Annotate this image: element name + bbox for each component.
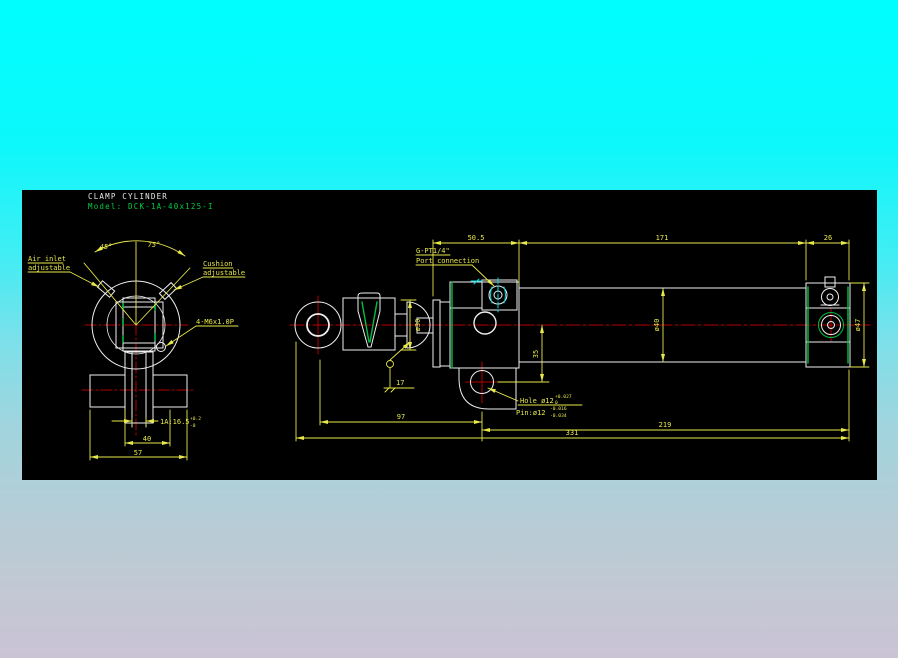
air-inlet-label-line1: Air inlet bbox=[28, 255, 66, 263]
front-view-angle-dimension bbox=[84, 241, 190, 325]
desktop-background: { "title_block": { "title": "CLAMP CYLIN… bbox=[0, 0, 898, 658]
tube-length-text: 171 bbox=[656, 234, 669, 242]
overall-length-text: 331 bbox=[566, 429, 579, 437]
air-inlet-callout: Air inlet adjustable bbox=[28, 255, 99, 287]
drawing-title: CLAMP CYLINDER bbox=[88, 192, 168, 201]
hole-label: Hole ø12 bbox=[520, 397, 554, 405]
cushion-label-line2: adjustable bbox=[203, 269, 245, 277]
slot-tolerance-upper: +0.2 bbox=[190, 416, 201, 422]
front-view-green-marks bbox=[123, 303, 155, 342]
port-label-line2: Port connection bbox=[416, 257, 479, 265]
cad-drawing: CLAMP CYLINDER Model: DCK-1A-40x125-I bbox=[22, 190, 877, 480]
pin-tolerance-upper: -0.016 bbox=[550, 406, 567, 412]
hole-tolerance-upper: +0.027 bbox=[555, 394, 572, 400]
hole-tolerance-lower: 0 bbox=[555, 400, 558, 406]
front-view-outline bbox=[90, 281, 187, 427]
cap-length-text: 26 bbox=[824, 234, 832, 242]
cap-diameter-text: ø47 bbox=[854, 319, 862, 332]
bore-diameter-text: ø40 bbox=[653, 319, 661, 332]
port-thread-highlight bbox=[471, 278, 506, 312]
bracket-to-end-text: 219 bbox=[659, 421, 672, 429]
front-view: 45° 75° Air inlet adjustable Cushion adj… bbox=[28, 241, 245, 460]
bracket-offset-dimension: 35 bbox=[498, 325, 549, 382]
head-length-text: 50.5 bbox=[468, 234, 485, 242]
outer-width-text: 57 bbox=[134, 449, 142, 457]
hole-pin-callout: Hole ø12 +0.027 0 Pin:ø12 -0.016 -0.034 bbox=[488, 388, 582, 419]
cad-canvas: CLAMP CYLINDER Model: DCK-1A-40x125-I bbox=[22, 190, 877, 480]
drawing-model: Model: DCK-1A-40x125-I bbox=[88, 202, 214, 211]
rod-extension-text: 17 bbox=[396, 379, 404, 387]
pin-tolerance-lower: -0.034 bbox=[550, 413, 567, 419]
thread-label: 4-M6x1.0P bbox=[196, 318, 234, 326]
bracket-offset-text: 35 bbox=[532, 350, 540, 358]
eye-to-bracket-text: 97 bbox=[397, 413, 405, 421]
angle-left-label: 45° bbox=[100, 243, 113, 251]
air-inlet-label-line2: adjustable bbox=[28, 264, 70, 272]
pin-label: Pin:ø12 bbox=[516, 409, 546, 417]
slot-tolerance-lower: -0 bbox=[190, 423, 196, 429]
bottom-dimension-chain: 97 219 331 bbox=[296, 342, 849, 441]
rod-diameter-text: ø30 bbox=[414, 319, 422, 332]
angle-right-label: 75° bbox=[148, 241, 161, 249]
cushion-callout: Cushion adjustable bbox=[174, 260, 245, 290]
side-view-outline bbox=[295, 277, 850, 409]
side-view: G-PT1/4" Port connection 50.5 171 26 bbox=[290, 234, 870, 441]
inner-width-text: 40 bbox=[143, 435, 151, 443]
cushion-label-line1: Cushion bbox=[203, 260, 233, 268]
slot-dimension-text: 1A:16.5 bbox=[160, 418, 190, 426]
